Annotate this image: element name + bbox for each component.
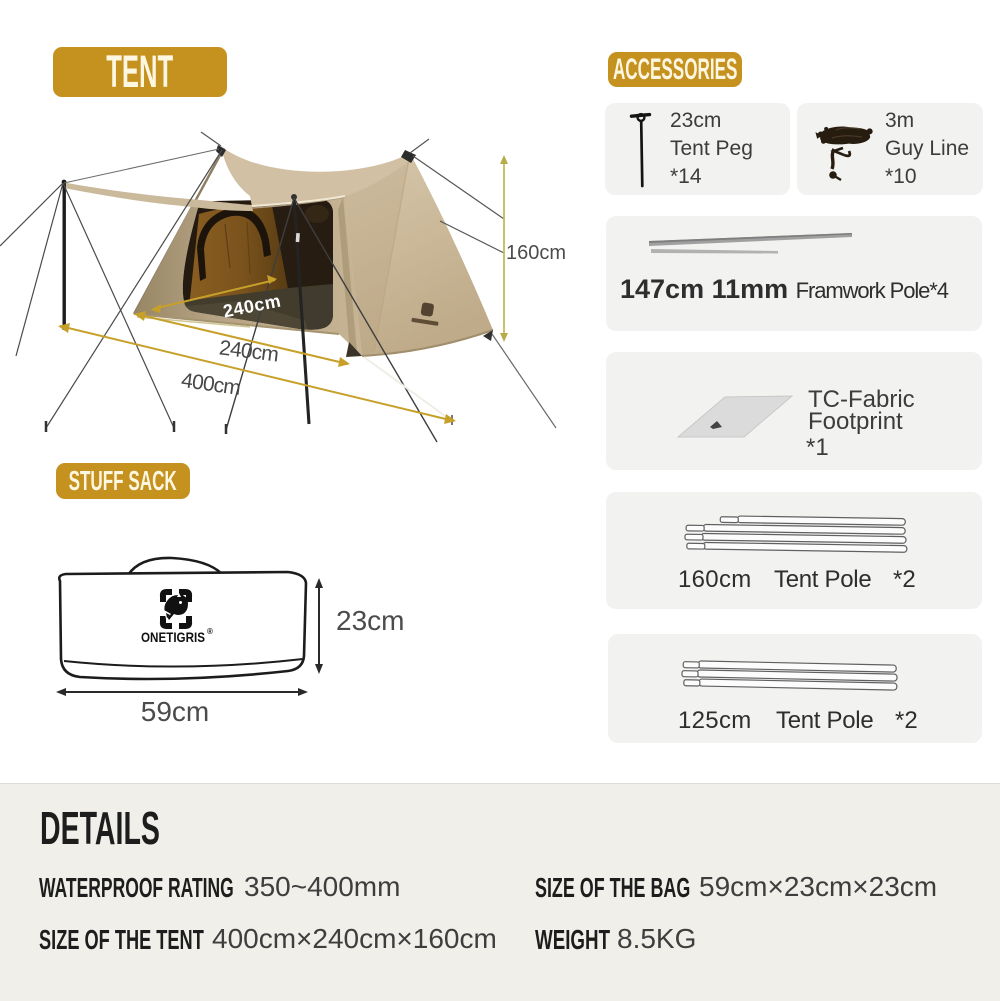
svg-text:160cm: 160cm [506,242,566,264]
svg-text:®: ® [207,627,213,636]
svg-text:ONETIGRIS: ONETIGRIS [141,629,205,645]
svg-text:240cm: 240cm [218,336,280,366]
svg-text:400cm: 400cm [180,369,243,400]
svg-text:23cm: 23cm [336,605,404,636]
svg-text:59cm: 59cm [141,696,209,727]
